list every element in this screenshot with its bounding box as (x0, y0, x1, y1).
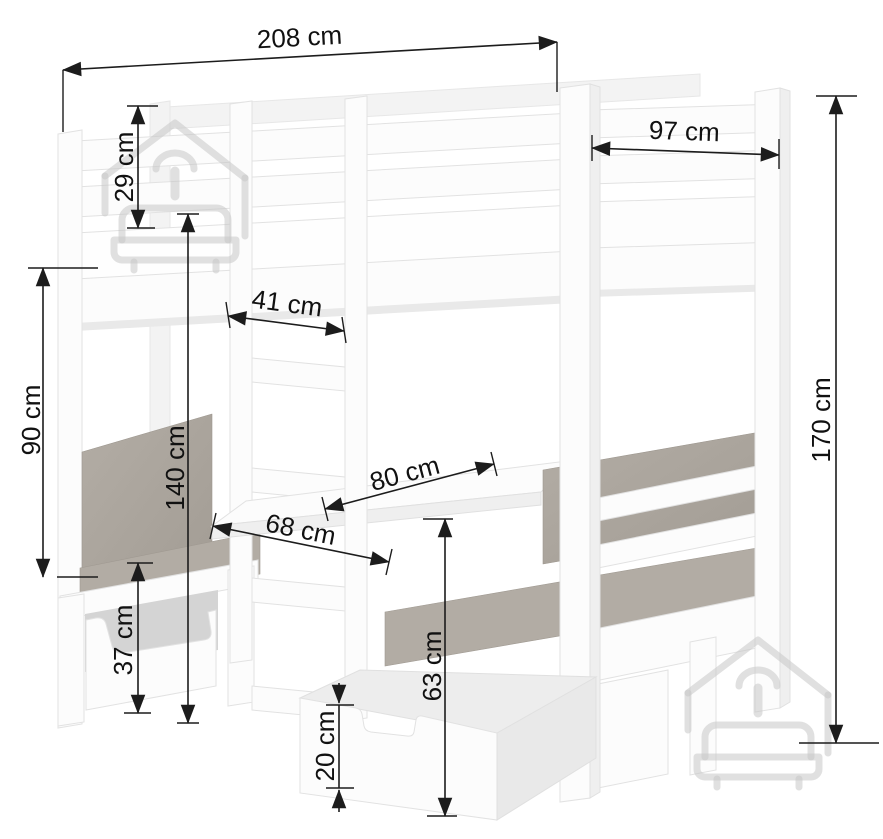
dimension-label: 90 cm (16, 385, 46, 456)
dimension-total-height: 170 cm (799, 96, 879, 743)
dimension-label: 20 cm (310, 711, 340, 782)
ladder-rung (252, 358, 345, 391)
right-rear-post (755, 88, 780, 712)
dimension-label: 97 cm (648, 115, 720, 147)
ladder-rear-stile (230, 101, 252, 663)
pulled-out-drawer (300, 670, 596, 820)
dimension-label: 37 cm (108, 605, 138, 676)
ladder-rung (252, 578, 345, 611)
dimension-label: 170 cm (806, 377, 836, 462)
left-bench-leg (58, 594, 84, 726)
dimension-label: 29 cm (109, 132, 139, 203)
dimension-label: 140 cm (160, 425, 190, 510)
diagram-canvas: 208 cm 97 cm 29 cm 41 cm 90 cm 140 cm 80… (0, 0, 883, 839)
right-bench-drawer (598, 670, 668, 788)
dimension-label: 63 cm (417, 631, 447, 702)
dimension-label: 208 cm (256, 20, 343, 55)
dimension-diagram: 208 cm 97 cm 29 cm 41 cm 90 cm 140 cm 80… (0, 0, 883, 839)
ladder-front-stile (345, 96, 367, 721)
